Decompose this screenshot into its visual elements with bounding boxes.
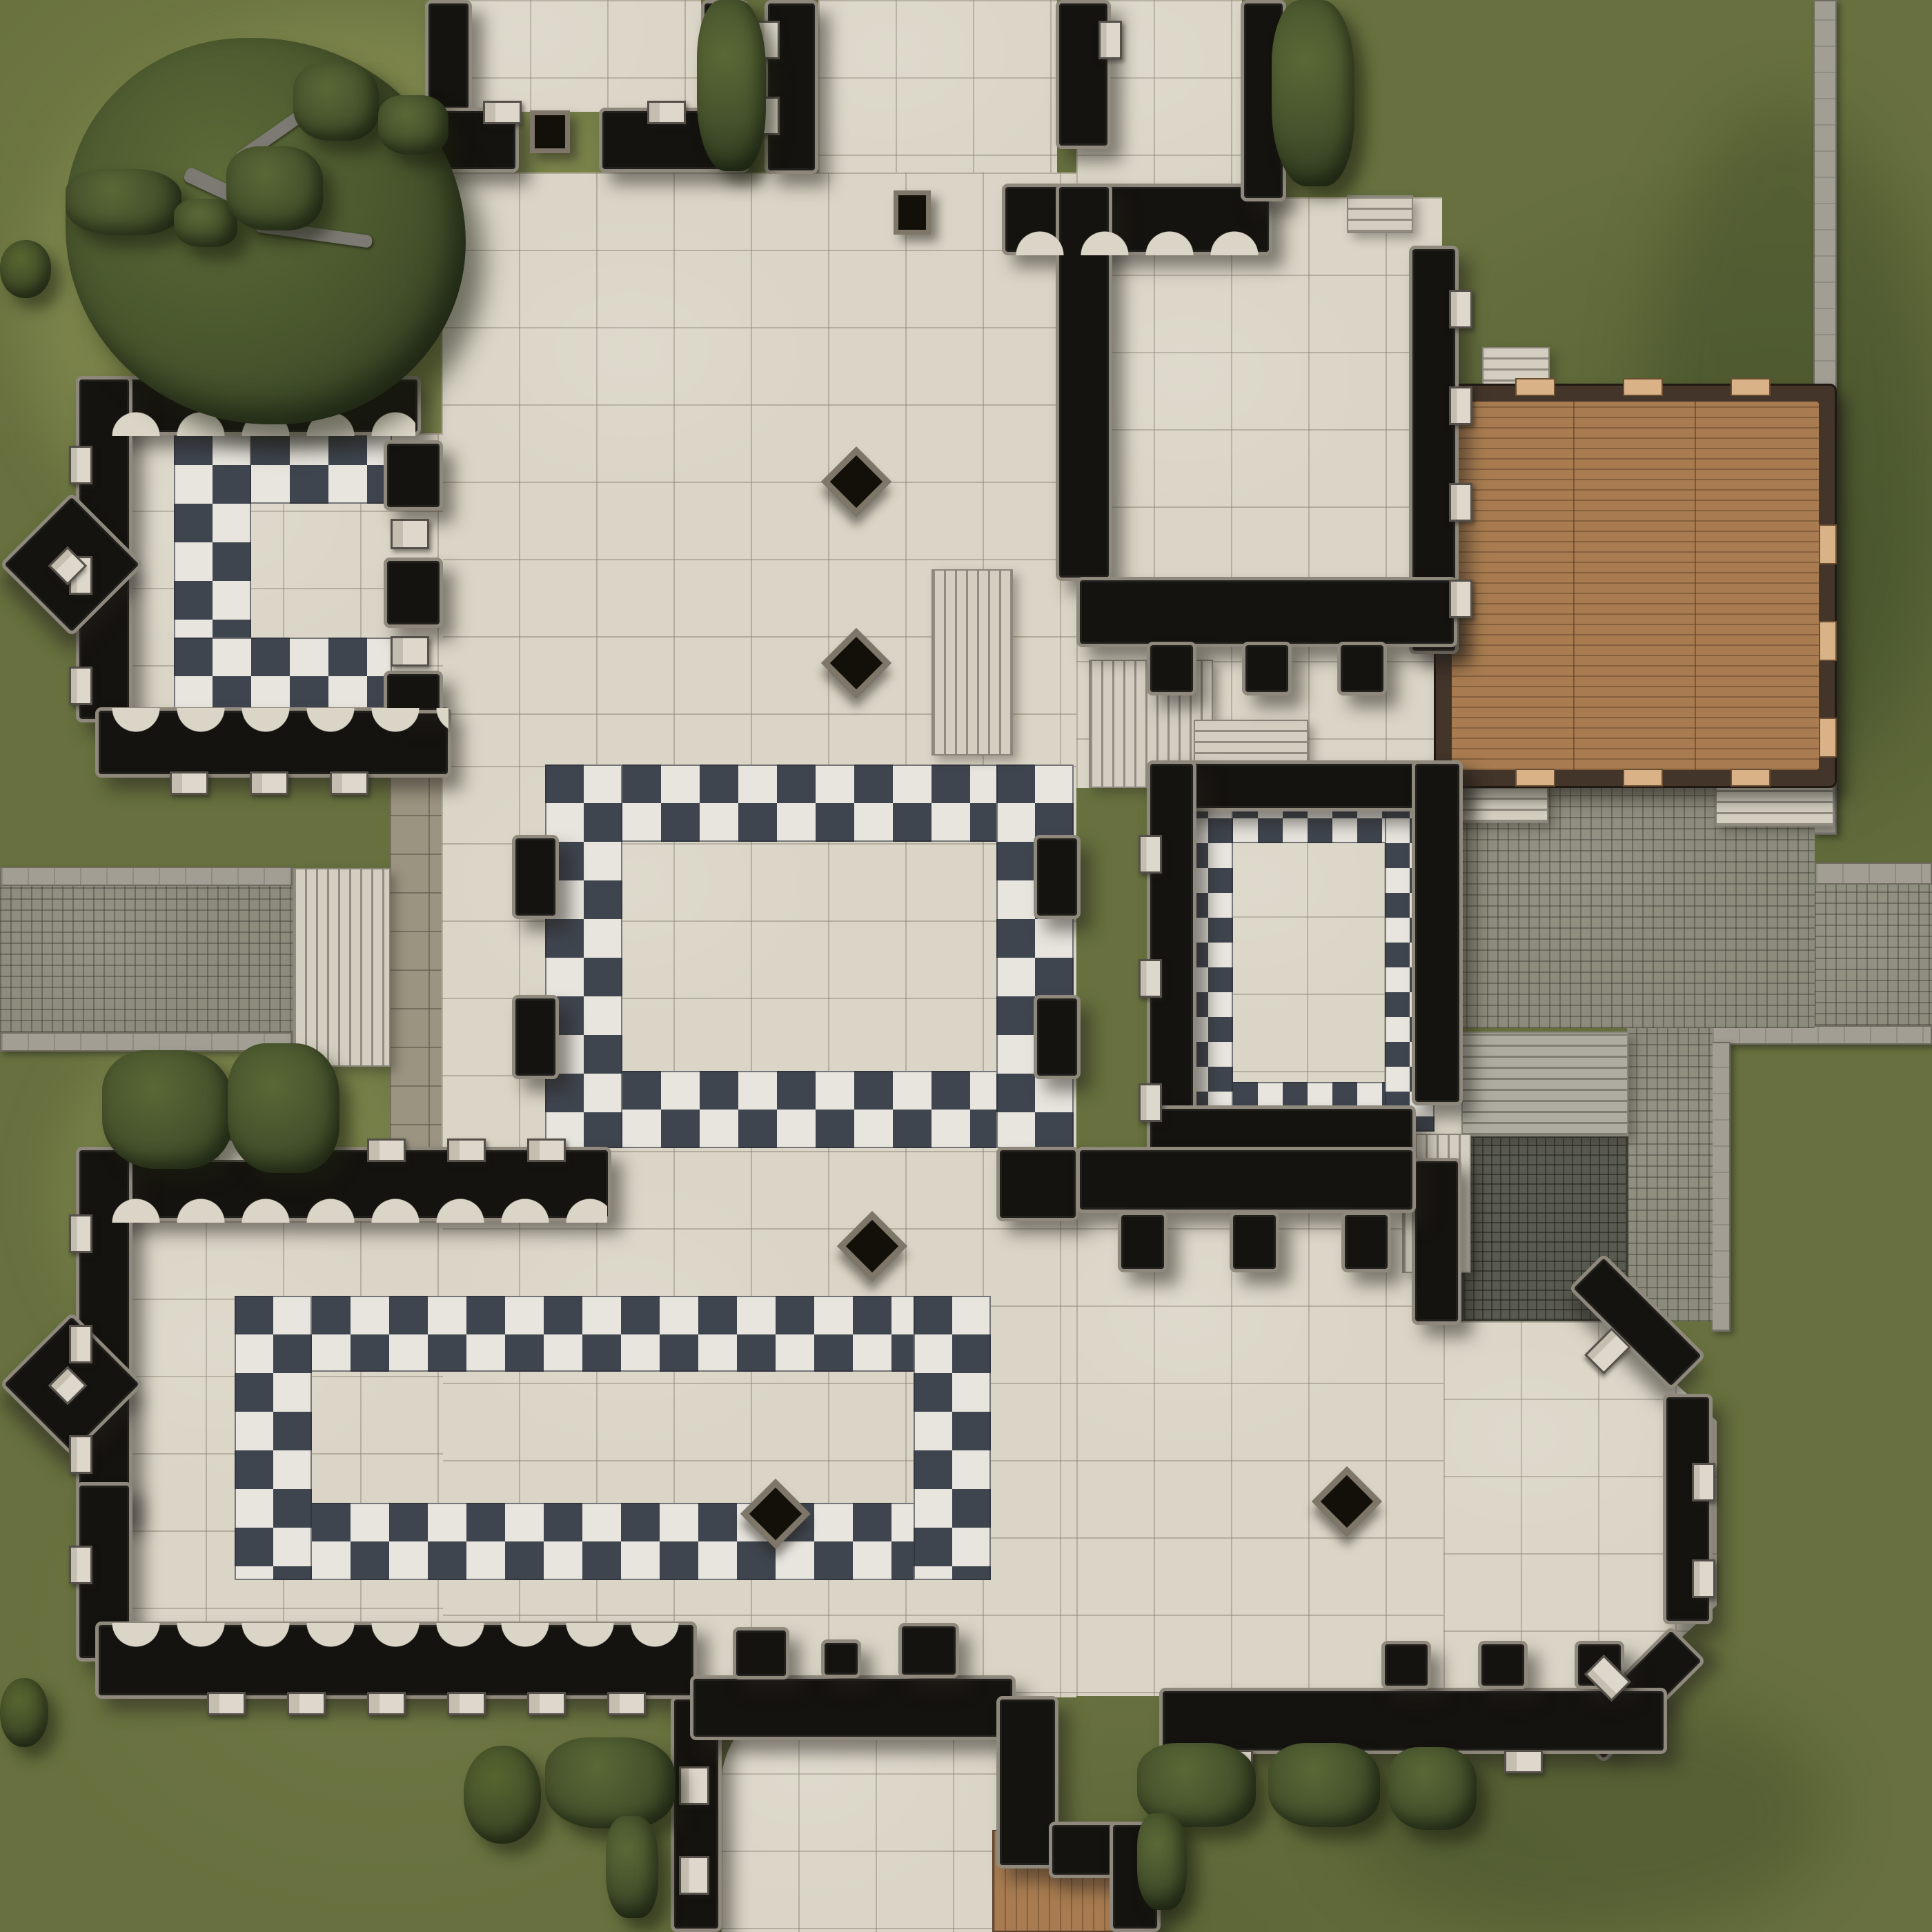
buttress (1337, 642, 1387, 696)
pillar-block (1449, 580, 1472, 618)
deck-post (1731, 378, 1771, 396)
hedge (1388, 1747, 1477, 1830)
deck-post (1623, 378, 1663, 396)
pillar-block (679, 1856, 709, 1895)
hedge (545, 1737, 675, 1828)
hedge (66, 169, 181, 235)
steps-northeast-garden (1347, 195, 1413, 233)
pillar-block (1692, 1463, 1715, 1501)
pillar-block (647, 101, 686, 124)
bush (0, 1678, 48, 1747)
pillar-block (1138, 835, 1162, 874)
arch-row (1007, 224, 1267, 255)
hedge (226, 146, 323, 230)
curb-plaza-south (1711, 1025, 1932, 1045)
deck-post (1819, 718, 1837, 758)
pillar-block (1138, 1083, 1162, 1122)
deck-post (1623, 769, 1663, 787)
deck-post (1731, 769, 1771, 787)
deck-post (1819, 621, 1837, 661)
arch-row (103, 1623, 694, 1655)
diamond-band-sw-bottom (235, 1503, 991, 1580)
pillar-block (1504, 1750, 1543, 1773)
crossing-stub (1034, 995, 1081, 1079)
floor-nave-top (818, 0, 1057, 174)
colonnade-block (384, 440, 443, 511)
pillar-block (250, 771, 288, 795)
pillar-block (69, 1214, 92, 1253)
doorway-pillar (530, 110, 570, 153)
buttress (1118, 1212, 1167, 1272)
stairs-crossing-north (931, 569, 1013, 756)
pillar-block (69, 1546, 92, 1584)
hedge (1137, 1813, 1187, 1910)
pillar-block (527, 1692, 566, 1715)
pillar-block (679, 1766, 709, 1805)
hedge (1268, 1743, 1380, 1827)
buttress (1230, 1212, 1279, 1272)
diamond-band-crossing-bottom (545, 1071, 1074, 1148)
pillar-block (69, 1435, 92, 1474)
pillar-block (69, 1325, 92, 1363)
pillar-block (170, 771, 208, 795)
hedge (1272, 0, 1354, 186)
wall-north-arm-west (425, 0, 472, 112)
cobble-path-south (1626, 1028, 1713, 1321)
deck-post (1819, 524, 1837, 564)
curb-northeast-corner (1815, 862, 1932, 885)
buttress (1242, 642, 1292, 696)
curb-road-north (0, 867, 293, 886)
pillar-block (607, 1692, 646, 1715)
buttress (1341, 1212, 1391, 1272)
crossing-stub (1034, 835, 1081, 919)
crossing-stub (512, 835, 559, 919)
wall-south-buttressed (690, 1675, 1016, 1740)
diamond-band-crossing-left (545, 765, 622, 1148)
steps-chapel-north (1194, 720, 1308, 767)
hedge (293, 63, 379, 141)
pillar-block (527, 1138, 566, 1162)
crossing-stub (512, 995, 559, 1079)
diamond-band-sw-top (235, 1296, 991, 1372)
stairs-west-road (293, 868, 391, 1067)
diamond-band-crossing-right (996, 765, 1074, 1148)
pillar-block (367, 1692, 406, 1715)
colonnade-block (384, 558, 443, 628)
buttress (821, 1639, 861, 1678)
buttress (1478, 1641, 1528, 1689)
colonnade-block (384, 671, 443, 713)
wall-chapel-southeast (1412, 1158, 1461, 1325)
pillar-block (1449, 483, 1472, 522)
hedge (606, 1816, 658, 1918)
pillar-block (391, 636, 429, 667)
pillar-block (207, 1692, 246, 1715)
battle-map (0, 0, 1932, 1932)
pillar-block (287, 1692, 326, 1715)
pillar-block (483, 101, 522, 124)
pillar-block (367, 1138, 406, 1162)
bush (0, 240, 51, 298)
diamond-band-sw-right (914, 1296, 991, 1580)
free-pillar-square (894, 190, 931, 235)
pillar-block (1692, 1559, 1715, 1598)
pillar-block (69, 667, 92, 705)
pillar-block (69, 446, 92, 484)
stairs-plaza-south (1461, 1032, 1628, 1136)
diamond-band-nw-bottom (174, 638, 392, 715)
pillar-block (1449, 290, 1472, 328)
cobble-path-east (1815, 885, 1932, 1025)
bush (464, 1746, 541, 1844)
pillar-block (391, 519, 429, 549)
pillar-block (447, 1692, 486, 1715)
floor-north-arm (453, 0, 701, 112)
deck-post (1515, 378, 1555, 396)
pillar-block (1098, 21, 1122, 59)
buttress (898, 1623, 959, 1678)
pillar-block (1449, 386, 1472, 425)
deck-post (1515, 769, 1555, 787)
buttress (733, 1627, 789, 1679)
arch-row (103, 1191, 607, 1223)
wall-east-hall-south (1076, 577, 1457, 647)
hedge (697, 0, 766, 171)
hedge (102, 1050, 232, 1169)
diamond-band-sw-left (235, 1296, 312, 1580)
pillar-block (447, 1138, 486, 1162)
pillar-block (1138, 959, 1162, 998)
buttress (1381, 1641, 1431, 1689)
wall-se-hall-north (1076, 1147, 1416, 1213)
cobble-road-west (0, 886, 293, 1032)
hedge (228, 1043, 339, 1173)
wall-chapel-east (1412, 760, 1463, 1105)
arch-row (103, 708, 448, 740)
buttress (1147, 642, 1196, 696)
curb-plaza-southwest (1711, 1042, 1731, 1332)
hedge (378, 95, 448, 155)
wall-se-hall-south (1159, 1688, 1667, 1754)
diamond-band-crossing-top (545, 765, 1074, 842)
deck-floor (1452, 402, 1819, 770)
pillar-block (330, 771, 368, 795)
wall-sw-room-north-stub (996, 1147, 1079, 1221)
